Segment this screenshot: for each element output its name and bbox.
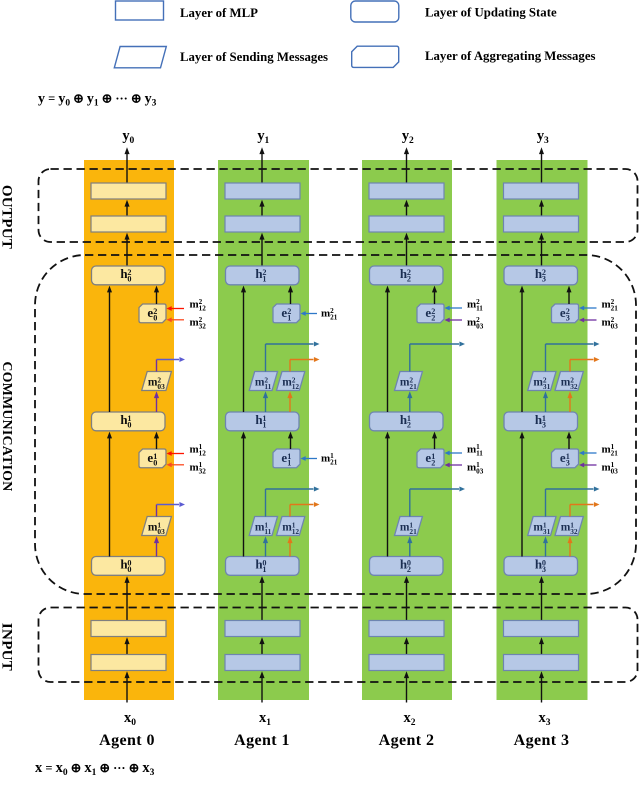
svg-text:0: 0 <box>153 314 157 323</box>
svg-text:31: 31 <box>543 527 551 536</box>
svg-text:Agent 1: Agent 1 <box>234 732 290 749</box>
svg-text:1: 1 <box>287 314 291 323</box>
svg-text:m: m <box>602 444 611 456</box>
svg-text:0: 0 <box>131 718 136 728</box>
svg-text:21: 21 <box>611 450 619 458</box>
svg-text:03: 03 <box>611 323 619 331</box>
svg-text:m: m <box>190 317 199 329</box>
svg-text:21: 21 <box>409 382 417 391</box>
svg-text:32: 32 <box>199 468 207 476</box>
svg-text:3: 3 <box>544 136 549 146</box>
svg-text:3: 3 <box>566 314 570 323</box>
svg-text:2: 2 <box>411 718 416 728</box>
svg-text:1: 1 <box>262 565 266 574</box>
svg-text:12: 12 <box>199 450 207 458</box>
svg-text:Layer of Aggregating Messages: Layer of Aggregating Messages <box>425 49 596 63</box>
svg-text:21: 21 <box>409 527 417 536</box>
svg-text:12: 12 <box>292 382 300 391</box>
svg-text:Layer of MLP: Layer of MLP <box>180 6 258 20</box>
svg-text:2: 2 <box>409 136 414 146</box>
svg-text:03: 03 <box>611 468 619 476</box>
svg-text:COMMUNICATION: COMMUNICATION <box>0 361 15 491</box>
svg-text:m: m <box>467 299 476 311</box>
svg-text:Layer of Updating State: Layer of Updating State <box>425 6 557 20</box>
svg-text:1: 1 <box>262 275 266 284</box>
svg-text:03: 03 <box>157 527 165 536</box>
svg-text:0: 0 <box>127 565 131 574</box>
svg-text:2: 2 <box>431 459 435 468</box>
svg-text:m: m <box>467 317 476 329</box>
svg-text:m: m <box>282 521 292 533</box>
svg-text:INPUT: INPUT <box>0 623 15 671</box>
svg-text:11: 11 <box>476 305 483 313</box>
svg-text:03: 03 <box>476 468 484 476</box>
svg-text:m: m <box>148 376 158 388</box>
svg-text:Agent 0: Agent 0 <box>99 732 155 749</box>
svg-text:m: m <box>467 444 476 456</box>
svg-text:m: m <box>190 462 199 474</box>
svg-text:3: 3 <box>542 565 546 574</box>
svg-text:Layer of Sending Messages: Layer of Sending Messages <box>180 50 328 64</box>
svg-text:2: 2 <box>407 421 411 430</box>
svg-text:0: 0 <box>127 421 131 430</box>
svg-text:12: 12 <box>199 305 207 313</box>
svg-text:1: 1 <box>287 459 291 468</box>
svg-text:31: 31 <box>543 382 551 391</box>
svg-text:21: 21 <box>611 305 619 313</box>
svg-text:1: 1 <box>266 718 271 728</box>
svg-text:m: m <box>321 453 330 465</box>
svg-text:3: 3 <box>542 275 546 284</box>
svg-text:11: 11 <box>476 450 483 458</box>
svg-text:m: m <box>561 376 571 388</box>
svg-text:m: m <box>400 376 410 388</box>
svg-text:21: 21 <box>330 459 338 467</box>
svg-text:0: 0 <box>127 275 131 284</box>
svg-text:OUTPUT: OUTPUT <box>0 185 15 249</box>
svg-text:32: 32 <box>199 323 207 331</box>
svg-text:3: 3 <box>542 421 546 430</box>
svg-text:32: 32 <box>570 527 578 536</box>
svg-text:12: 12 <box>292 527 300 536</box>
svg-text:Agent 2: Agent 2 <box>379 732 435 749</box>
svg-text:m: m <box>282 376 292 388</box>
svg-text:21: 21 <box>330 314 338 322</box>
svg-text:m: m <box>561 521 571 533</box>
svg-text:3: 3 <box>566 459 570 468</box>
svg-text:m: m <box>602 317 611 329</box>
svg-text:03: 03 <box>157 382 165 391</box>
svg-text:m: m <box>190 444 199 456</box>
svg-text:m: m <box>602 462 611 474</box>
svg-text:11: 11 <box>264 382 271 391</box>
svg-text:1: 1 <box>262 421 266 430</box>
svg-text:03: 03 <box>476 323 484 331</box>
svg-text:m: m <box>321 308 330 320</box>
svg-text:m: m <box>602 299 611 311</box>
svg-text:m: m <box>467 462 476 474</box>
svg-text:Agent 3: Agent 3 <box>514 732 570 749</box>
svg-text:1: 1 <box>265 136 270 146</box>
svg-text:m: m <box>533 521 543 533</box>
svg-text:m: m <box>148 521 158 533</box>
svg-text:0: 0 <box>153 459 157 468</box>
svg-text:11: 11 <box>264 527 271 536</box>
svg-text:m: m <box>533 376 543 388</box>
svg-text:0: 0 <box>130 136 135 146</box>
svg-text:3: 3 <box>546 718 551 728</box>
svg-text:2: 2 <box>407 565 411 574</box>
svg-text:m: m <box>255 521 265 533</box>
svg-text:2: 2 <box>431 314 435 323</box>
svg-text:2: 2 <box>407 275 411 284</box>
svg-text:m: m <box>255 376 265 388</box>
svg-text:m: m <box>190 299 199 311</box>
svg-text:m: m <box>400 521 410 533</box>
svg-text:32: 32 <box>570 382 578 391</box>
